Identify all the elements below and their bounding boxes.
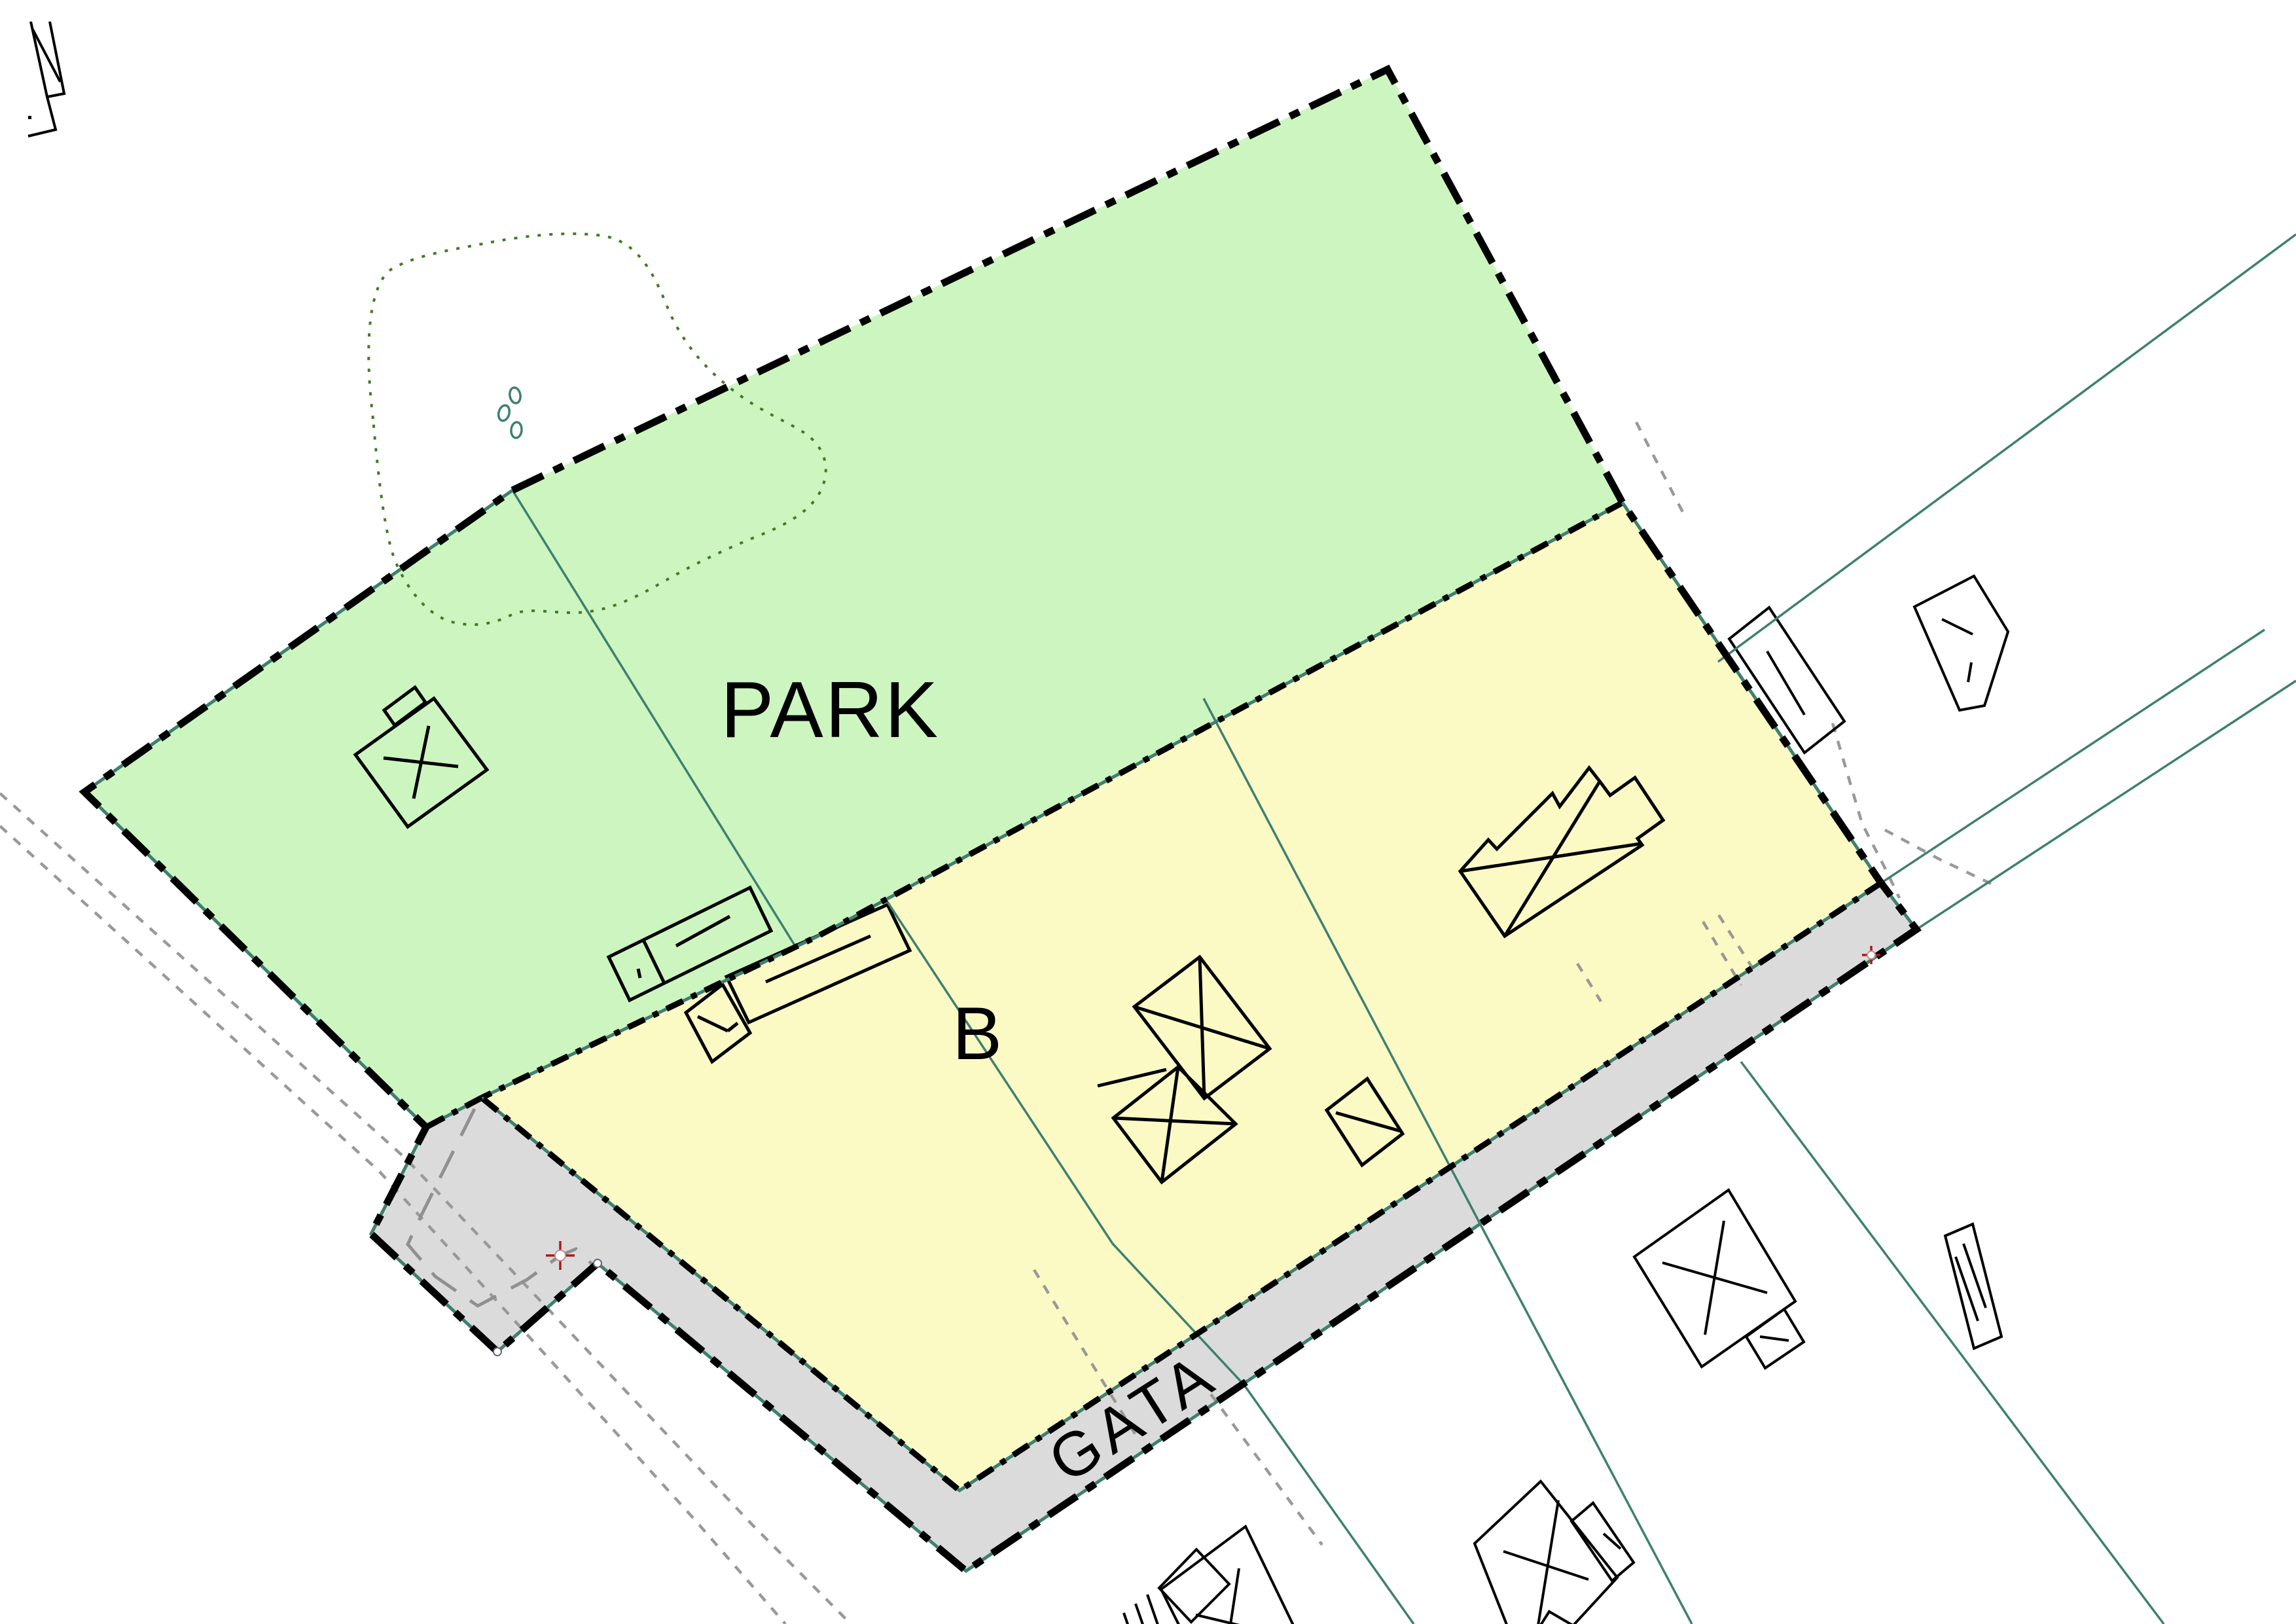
building-annex (1571, 1503, 1634, 1581)
building-annex (1159, 1549, 1229, 1622)
boundary-corner-dot (594, 1259, 601, 1267)
building-tick (1964, 1244, 1986, 1308)
building-tick (1968, 662, 1971, 682)
building-tick (1942, 619, 1973, 634)
building-footprint (1914, 576, 2008, 710)
map-dot (28, 116, 31, 119)
tree-symbol-icon (509, 387, 522, 404)
tree-symbol-icon (497, 404, 511, 422)
building-tick (1760, 1337, 1789, 1341)
old-lot-line-dashed (1885, 830, 1991, 884)
boundary-corner-dot (493, 1348, 501, 1356)
tree-symbol-icon (511, 422, 522, 438)
property-line (1916, 681, 2296, 929)
building-outline-clipped (28, 22, 56, 136)
zoning-plan-map: PARK B GATA (0, 0, 2296, 1624)
plan-areas (84, 69, 1916, 1571)
building-footprint (1945, 1224, 2001, 1348)
housing-label: B (952, 992, 1002, 1075)
old-lot-line-dashed (1636, 422, 1686, 518)
property-line (1718, 234, 2296, 662)
building-footprint (1475, 1481, 1617, 1624)
building-annex (1518, 1612, 1615, 1624)
park-label: PARK (721, 665, 940, 754)
property-line (1881, 630, 2265, 883)
building-tick (638, 969, 640, 978)
building-cross-line (1705, 1221, 1724, 1335)
